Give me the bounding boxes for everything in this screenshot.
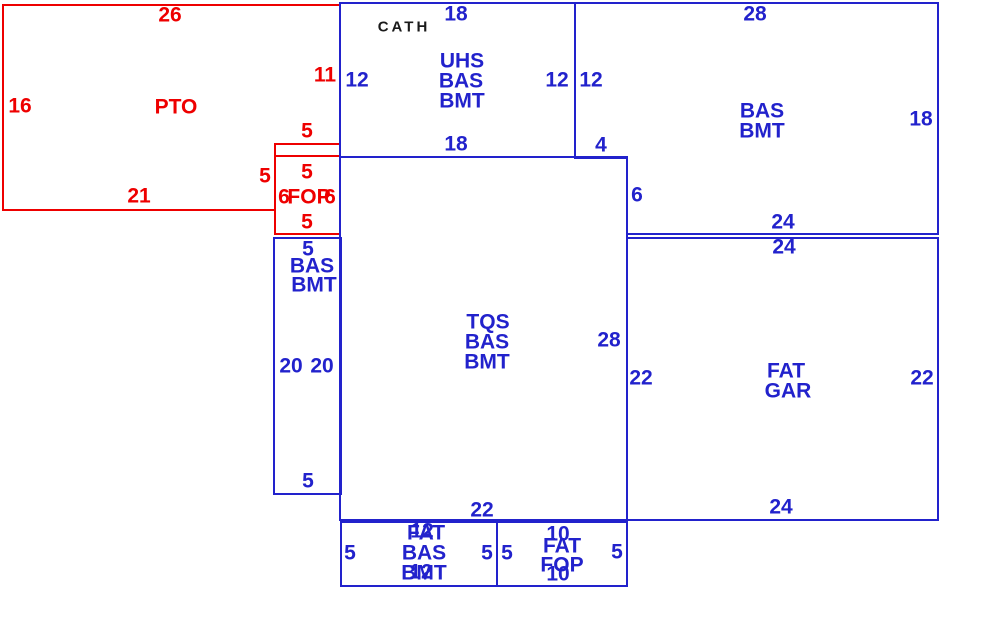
pto-dim-top: 26	[158, 5, 181, 26]
ff-dim-left: 5	[501, 543, 513, 564]
w-dim-bottom: 5	[302, 471, 314, 492]
fop-dim-bottom: 5	[301, 212, 313, 233]
fop-dim-right: 6	[324, 187, 336, 208]
tqs-dim-right: 28	[597, 330, 620, 351]
tqs-label-line3: BMT	[464, 352, 510, 373]
ff-dim-right: 5	[611, 542, 623, 563]
fbb-dim-bottom: 12	[409, 562, 432, 583]
uhs-label-line3: BMT	[439, 91, 485, 112]
pto-dim-bottom: 21	[127, 186, 150, 207]
pto-area-label: PTO	[155, 97, 198, 118]
pto-dim-right: 11	[314, 65, 336, 86]
gar-dim-left: 22	[629, 368, 652, 389]
gar-dim-bottom: 24	[769, 497, 792, 518]
uhs-dim-bottom: 18	[444, 134, 467, 155]
uhs-cath-note: CATH	[378, 20, 431, 35]
gar-dim-top: 24	[772, 237, 795, 258]
fbb-dim-left: 5	[344, 543, 356, 564]
fbb-label-line1: FAT	[407, 523, 445, 544]
fbb-dim-right: 5	[481, 543, 493, 564]
uhs-dim-right: 12	[545, 70, 568, 91]
uhs-dim-left: 12	[345, 70, 368, 91]
tqs-label-line2: BAS	[465, 332, 509, 353]
gar-label-line2: GAR	[765, 381, 812, 402]
tqs-dim-bottom: 22	[470, 500, 493, 521]
ne-dim-top: 28	[743, 4, 766, 25]
ne-dim-notch-v: 6	[631, 185, 643, 206]
w-dim-left: 20	[279, 356, 302, 377]
pto-dim-step-left: 5	[259, 166, 271, 187]
ff-dim-bottom: 10	[546, 564, 569, 585]
ne-dim-bottom: 24	[771, 212, 794, 233]
ne-dim-left: 12	[579, 70, 602, 91]
pto-dim-step-top: 5	[301, 121, 313, 142]
tqs-label-line1: TQS	[466, 312, 509, 333]
ne-label-line1: BAS	[740, 101, 784, 122]
pto-dim-left: 16	[8, 96, 31, 117]
w-dim-right: 20	[310, 356, 333, 377]
ne-dim-notch-h: 4	[595, 135, 607, 156]
w-label-line2: BMT	[291, 275, 337, 296]
ne-label-line2: BMT	[739, 121, 785, 142]
uhs-label-line2: BAS	[439, 71, 483, 92]
gar-dim-right: 22	[910, 368, 933, 389]
ne-dim-right: 18	[909, 109, 932, 130]
gar-label-line1: FAT	[767, 361, 805, 382]
fop-dim-top: 5	[301, 162, 313, 183]
uhs-dim-top: 18	[444, 4, 467, 25]
uhs-label-line1: UHS	[440, 51, 484, 72]
property-sketch: 26 16 PTO 11 5 5 21 5 6 FOP 6 5 CATH 18 …	[0, 0, 990, 644]
